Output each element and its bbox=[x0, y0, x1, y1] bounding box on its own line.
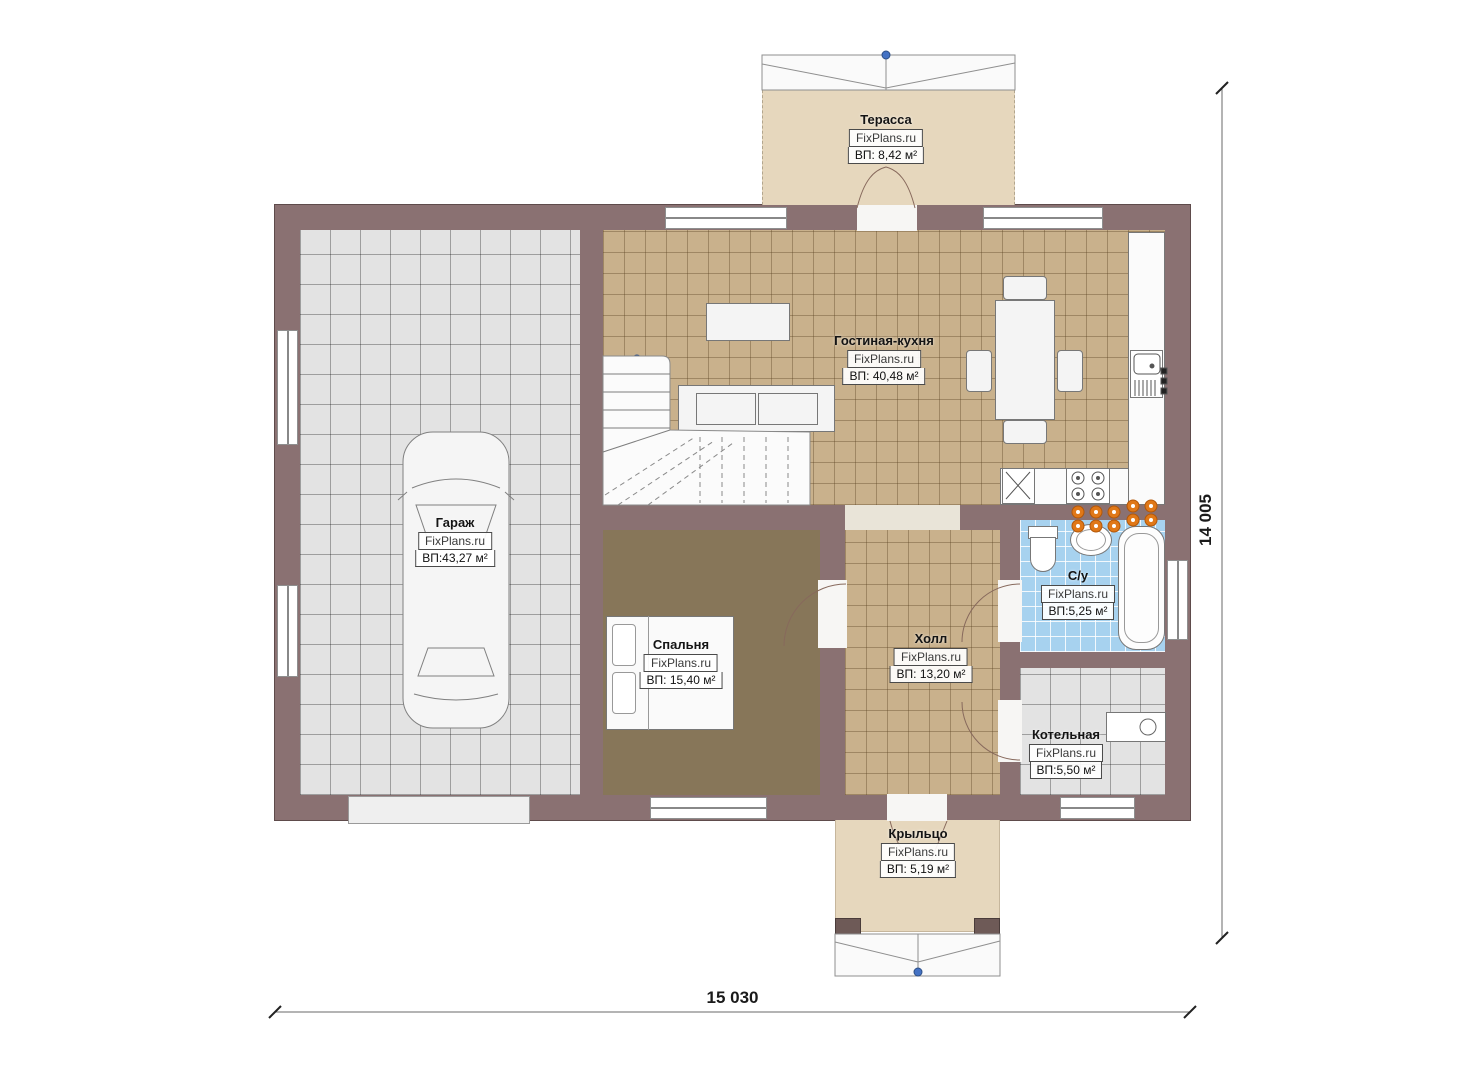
dimension-width-label: 15 030 bbox=[660, 988, 805, 1008]
porch-pillar-left bbox=[835, 918, 861, 942]
window-top-right bbox=[983, 207, 1103, 229]
watermark: FixPlans.ru bbox=[894, 648, 968, 666]
room-label-bedroom: Спальня FixPlans.ru ВП: 15,40 м² bbox=[640, 637, 723, 689]
window-boiler bbox=[1060, 797, 1135, 819]
room-label-living-kitchen: Гостиная-кухня FixPlans.ru ВП: 40,48 м² bbox=[834, 333, 934, 385]
room-name: Холл bbox=[915, 631, 948, 646]
bathroom-sink-basin bbox=[1076, 529, 1106, 551]
bathroom-door-opening bbox=[998, 580, 1022, 642]
room-label-boiler: Котельная FixPlans.ru ВП:5,50 м² bbox=[1029, 727, 1103, 779]
window-bathroom bbox=[1167, 560, 1188, 640]
window-bedroom bbox=[650, 797, 767, 819]
room-label-terrace: Терасса FixPlans.ru ВП: 8,42 м² bbox=[848, 112, 924, 164]
bedroom-door-opening bbox=[818, 580, 847, 648]
dimension-height-label: 14 005 bbox=[1196, 465, 1218, 575]
stove bbox=[1066, 468, 1110, 504]
sofa-cushion bbox=[696, 393, 756, 425]
window-top-left bbox=[665, 207, 787, 229]
room-name: Котельная bbox=[1032, 727, 1100, 742]
room-label-bathroom: С/у FixPlans.ru ВП:5,25 м² bbox=[1041, 568, 1115, 620]
watermark: FixPlans.ru bbox=[849, 129, 923, 147]
room-label-hall: Холл FixPlans.ru ВП: 13,20 м² bbox=[890, 631, 973, 683]
room-area: ВП:43,27 м² bbox=[415, 550, 495, 567]
sofa-cushion bbox=[758, 393, 818, 425]
dining-chair bbox=[966, 350, 992, 392]
porch-door-opening bbox=[887, 794, 947, 821]
porch-pillar-right bbox=[974, 918, 1000, 942]
garage-floor bbox=[300, 230, 580, 795]
bed-pillow bbox=[612, 672, 636, 714]
window-garage-lower bbox=[277, 585, 298, 677]
watermark: FixPlans.ru bbox=[644, 654, 718, 672]
kitchen-sink-unit bbox=[1130, 350, 1163, 398]
dining-chair bbox=[1003, 420, 1047, 444]
room-area: ВП:5,50 м² bbox=[1030, 762, 1103, 779]
room-area: ВП: 5,19 м² bbox=[880, 861, 956, 878]
terrace-door-opening bbox=[857, 205, 917, 231]
room-area: ВП: 13,20 м² bbox=[890, 666, 973, 683]
room-name: Крыльцо bbox=[888, 826, 947, 841]
room-name: Гараж bbox=[436, 515, 475, 530]
room-name: Гостиная-кухня bbox=[834, 333, 934, 348]
kitchen-sink-box bbox=[1002, 468, 1035, 504]
room-label-garage: Гараж FixPlans.ru ВП:43,27 м² bbox=[415, 515, 495, 567]
terrace-roof bbox=[762, 55, 1015, 90]
bathtub-inner bbox=[1124, 533, 1159, 643]
watermark: FixPlans.ru bbox=[847, 350, 921, 368]
bed-pillow bbox=[612, 624, 636, 666]
dining-chair bbox=[1003, 276, 1047, 300]
room-name: С/у bbox=[1068, 568, 1088, 583]
room-label-porch: Крыльцо FixPlans.ru ВП: 5,19 м² bbox=[880, 826, 956, 878]
boiler-unit bbox=[1106, 712, 1166, 742]
window-garage-upper bbox=[277, 330, 298, 445]
garage-gate bbox=[348, 796, 530, 824]
room-area: ВП: 15,40 м² bbox=[640, 672, 723, 689]
watermark: FixPlans.ru bbox=[1041, 585, 1115, 603]
room-name: Терасса bbox=[860, 112, 912, 127]
coffee-table bbox=[706, 303, 790, 341]
toilet-bowl bbox=[1030, 537, 1056, 572]
boiler-door-opening bbox=[998, 700, 1022, 762]
dining-table bbox=[995, 300, 1055, 420]
watermark: FixPlans.ru bbox=[418, 532, 492, 550]
watermark: FixPlans.ru bbox=[881, 843, 955, 861]
dining-chair bbox=[1057, 350, 1083, 392]
living-hall-opening bbox=[845, 505, 960, 530]
room-name: Спальня bbox=[653, 637, 709, 652]
watermark: FixPlans.ru bbox=[1029, 744, 1103, 762]
room-area: ВП:5,25 м² bbox=[1042, 603, 1115, 620]
room-area: ВП: 40,48 м² bbox=[843, 368, 926, 385]
floor-plan-canvas: Терасса FixPlans.ru ВП: 8,42 м² Гостиная… bbox=[0, 0, 1474, 1080]
room-area: ВП: 8,42 м² bbox=[848, 147, 924, 164]
